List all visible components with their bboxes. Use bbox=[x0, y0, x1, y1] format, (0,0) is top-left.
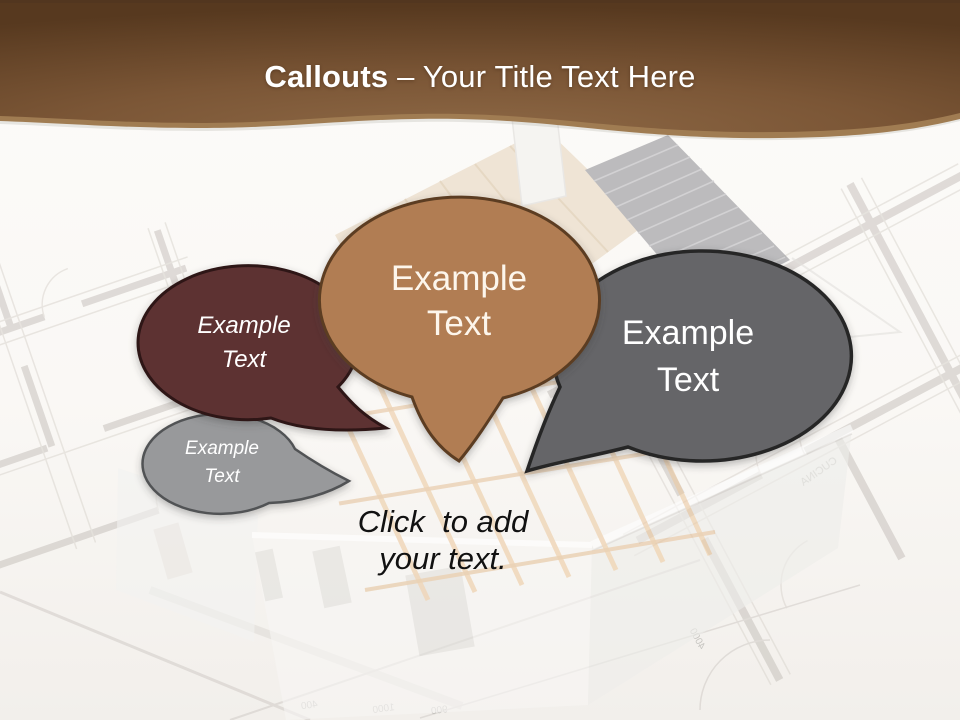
callout-shapes bbox=[0, 0, 960, 720]
placeholder-line: your text. bbox=[303, 540, 583, 577]
placeholder-line: Click to add bbox=[303, 503, 583, 540]
slide-canvas: 400 1000 900 4000 CUCINA bbox=[0, 0, 960, 720]
text-placeholder[interactable]: Click to add your text. bbox=[303, 503, 583, 577]
